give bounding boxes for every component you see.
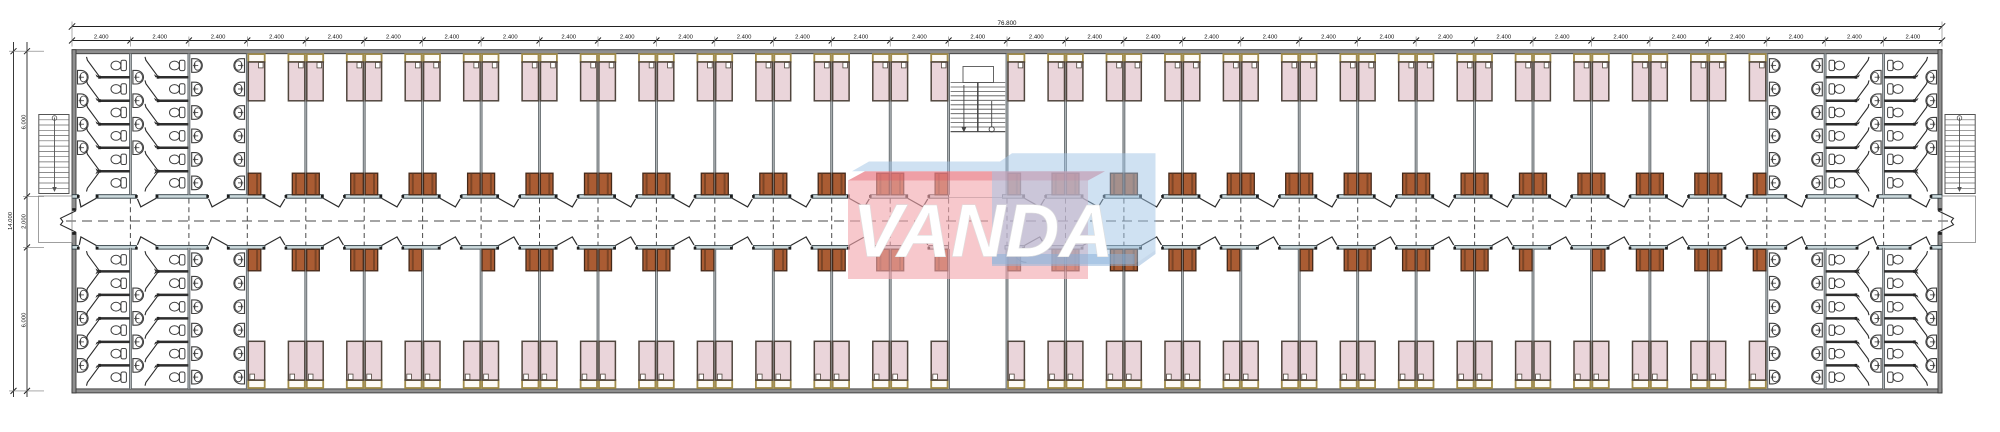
svg-text:2.400: 2.400 [152,35,167,41]
svg-text:2.400: 2.400 [445,35,460,41]
svg-text:2.000: 2.000 [21,213,27,228]
svg-text:2.400: 2.400 [854,35,869,41]
svg-text:VANDA: VANDA [852,189,1113,273]
svg-text:2.400: 2.400 [1438,35,1453,41]
svg-text:2.400: 2.400 [269,35,284,41]
svg-text:2.400: 2.400 [1204,35,1219,41]
svg-text:6.000: 6.000 [21,114,27,129]
svg-text:2.400: 2.400 [1146,35,1161,41]
svg-text:2.400: 2.400 [970,35,985,41]
svg-text:2.400: 2.400 [1029,35,1044,41]
svg-text:2.400: 2.400 [737,35,752,41]
svg-text:2.400: 2.400 [620,35,635,41]
svg-text:2.400: 2.400 [1672,35,1687,41]
svg-text:2.400: 2.400 [1555,35,1570,41]
svg-text:2.400: 2.400 [795,35,810,41]
svg-text:2.400: 2.400 [1380,35,1395,41]
svg-text:2.400: 2.400 [503,35,518,41]
svg-text:2.400: 2.400 [94,35,109,41]
svg-text:2.400: 2.400 [1263,35,1278,41]
svg-text:2.400: 2.400 [1613,35,1628,41]
svg-text:2.400: 2.400 [1087,35,1102,41]
svg-text:14.000: 14.000 [8,211,14,230]
svg-text:2.400: 2.400 [912,35,927,41]
svg-text:76.800: 76.800 [998,20,1017,27]
svg-text:2.400: 2.400 [211,35,226,41]
svg-text:2.400: 2.400 [1906,35,1921,41]
svg-text:6.000: 6.000 [21,312,27,327]
svg-text:2.400: 2.400 [1496,35,1511,41]
svg-text:2.400: 2.400 [1730,35,1745,41]
svg-text:2.400: 2.400 [328,35,343,41]
svg-text:2.400: 2.400 [386,35,401,41]
svg-text:2.400: 2.400 [561,35,576,41]
svg-text:2.400: 2.400 [1321,35,1336,41]
svg-text:2.400: 2.400 [678,35,693,41]
svg-text:2.400: 2.400 [1789,35,1804,41]
svg-text:2.400: 2.400 [1847,35,1862,41]
